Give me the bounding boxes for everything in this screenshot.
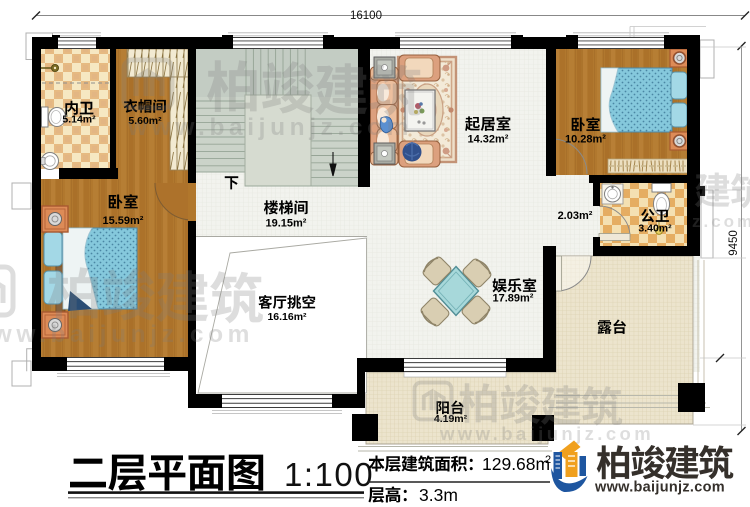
svg-text:17.89m²: 17.89m²: [493, 293, 534, 305]
svg-text:9450: 9450: [728, 230, 740, 256]
svg-text:z.com: z.com: [692, 212, 750, 231]
svg-text:3.3m: 3.3m: [419, 485, 458, 505]
svg-text:15.59m²: 15.59m²: [103, 215, 144, 227]
svg-text:129.68m: 129.68m: [482, 454, 550, 474]
svg-text:5.14m²: 5.14m²: [62, 114, 96, 126]
svg-text:www.baijunjz.com: www.baijunjz.com: [127, 114, 413, 141]
svg-text:2: 2: [545, 454, 551, 466]
svg-text:10.28m²: 10.28m²: [565, 134, 606, 146]
svg-text:14.32m²: 14.32m²: [468, 134, 509, 146]
svg-text:www.baijunjz.com: www.baijunjz.com: [0, 321, 254, 348]
svg-text:www.baijunjz.com: www.baijunjz.com: [594, 480, 725, 496]
svg-text:2.03m²: 2.03m²: [558, 210, 593, 222]
svg-text:19.15m²: 19.15m²: [266, 218, 307, 230]
svg-text:www.baijunjz.com: www.baijunjz.com: [439, 423, 654, 444]
svg-text:16.16m²: 16.16m²: [267, 311, 307, 323]
svg-text:16100: 16100: [350, 10, 382, 22]
svg-text:1:100: 1:100: [284, 456, 374, 493]
svg-text:3.40m²: 3.40m²: [638, 223, 672, 235]
